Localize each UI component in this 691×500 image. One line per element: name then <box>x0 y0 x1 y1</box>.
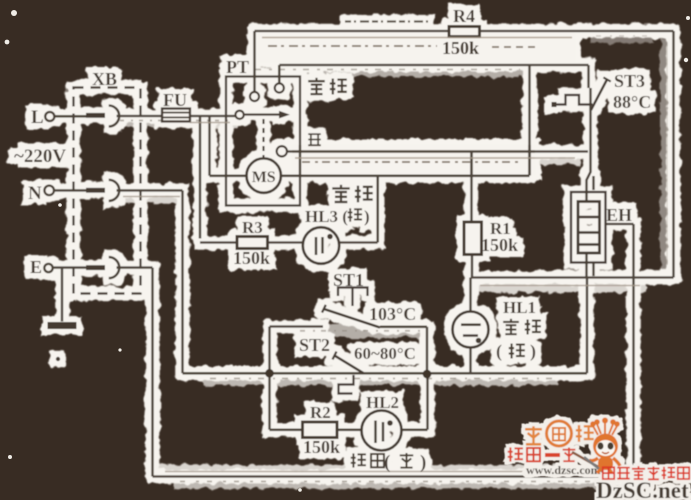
svg-text:EH: EH <box>606 205 632 225</box>
svg-text:): ) <box>530 341 536 362</box>
svg-text:150k: 150k <box>481 235 518 255</box>
svg-text:XB: XB <box>92 69 117 89</box>
svg-text:150k: 150k <box>442 38 479 58</box>
svg-text:FU: FU <box>163 90 187 110</box>
svg-text:HL3 (: HL3 ( <box>305 207 348 226</box>
svg-text:HL2: HL2 <box>366 393 399 412</box>
svg-text:L: L <box>31 107 44 128</box>
svg-text:150k: 150k <box>233 248 270 268</box>
svg-text:N: N <box>28 183 42 204</box>
svg-text:R2: R2 <box>310 403 331 422</box>
svg-text:www.dzsc.com: www.dzsc.com <box>526 463 601 477</box>
svg-text:60~80°C: 60~80°C <box>354 344 416 363</box>
svg-text:): ) <box>420 452 426 473</box>
svg-text:(: ( <box>496 341 502 362</box>
svg-text:DzSC.net: DzSC.net <box>596 478 689 500</box>
svg-text:E: E <box>30 257 42 277</box>
svg-text:~220V: ~220V <box>14 146 66 167</box>
svg-text:HL1: HL1 <box>503 298 536 317</box>
svg-text:): ) <box>364 207 370 226</box>
svg-text:ST3: ST3 <box>614 71 645 91</box>
svg-text:88°C: 88°C <box>613 92 651 112</box>
svg-text:R3: R3 <box>242 218 263 237</box>
svg-text:ST2: ST2 <box>299 335 330 355</box>
svg-text:ST1: ST1 <box>333 270 364 290</box>
svg-text:MS: MS <box>252 169 276 186</box>
svg-text:R4: R4 <box>453 6 475 26</box>
svg-text:150k: 150k <box>303 437 340 457</box>
svg-text:103°C: 103°C <box>369 304 416 324</box>
svg-text:PT: PT <box>226 57 249 77</box>
